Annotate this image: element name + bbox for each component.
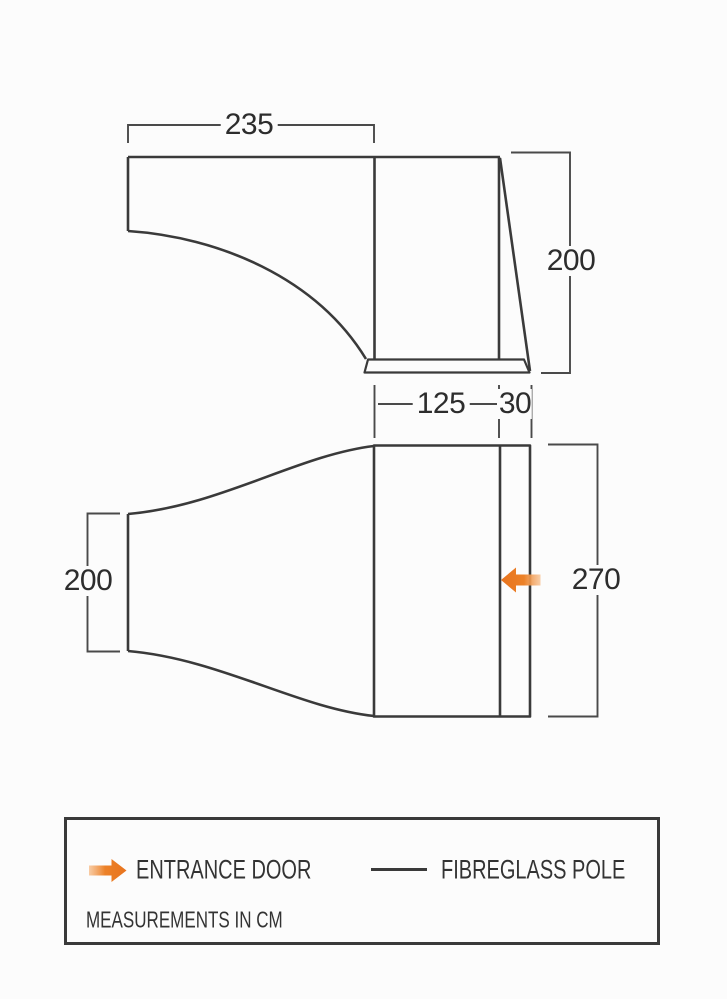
dim-label-pole-depth: 30 <box>498 389 532 419</box>
dimension-diagram: 235 200 125 30 200 270 ENTRANCE DOOR FIB… <box>0 0 727 999</box>
side-view-canopy-curve <box>128 231 366 359</box>
legend-fibreglass-pole-label: FIBREGLASS POLE <box>441 857 625 884</box>
side-view-drawing <box>128 157 530 373</box>
plan-view-top-curve <box>128 446 374 514</box>
dim-label-overall-width: 270 <box>568 565 625 595</box>
side-view-rear-slant <box>500 158 530 371</box>
dim-label-rear-height: 200 <box>543 246 600 276</box>
plan-view-drawing <box>128 446 530 717</box>
plan-view-bottom-curve <box>128 651 374 716</box>
dim-label-canopy-depth: 125 <box>413 389 470 419</box>
legend-entrance-door-arrow-icon <box>89 859 127 882</box>
dim-label-top-width: 235 <box>221 110 278 140</box>
diagram-canvas <box>0 0 727 999</box>
measurements-note: MEASUREMENTS IN CM <box>86 909 283 932</box>
dim-label-tunnel-width: 200 <box>60 566 117 596</box>
legend-entrance-door-label: ENTRANCE DOOR <box>136 857 311 884</box>
side-view-base-bar <box>365 360 530 373</box>
